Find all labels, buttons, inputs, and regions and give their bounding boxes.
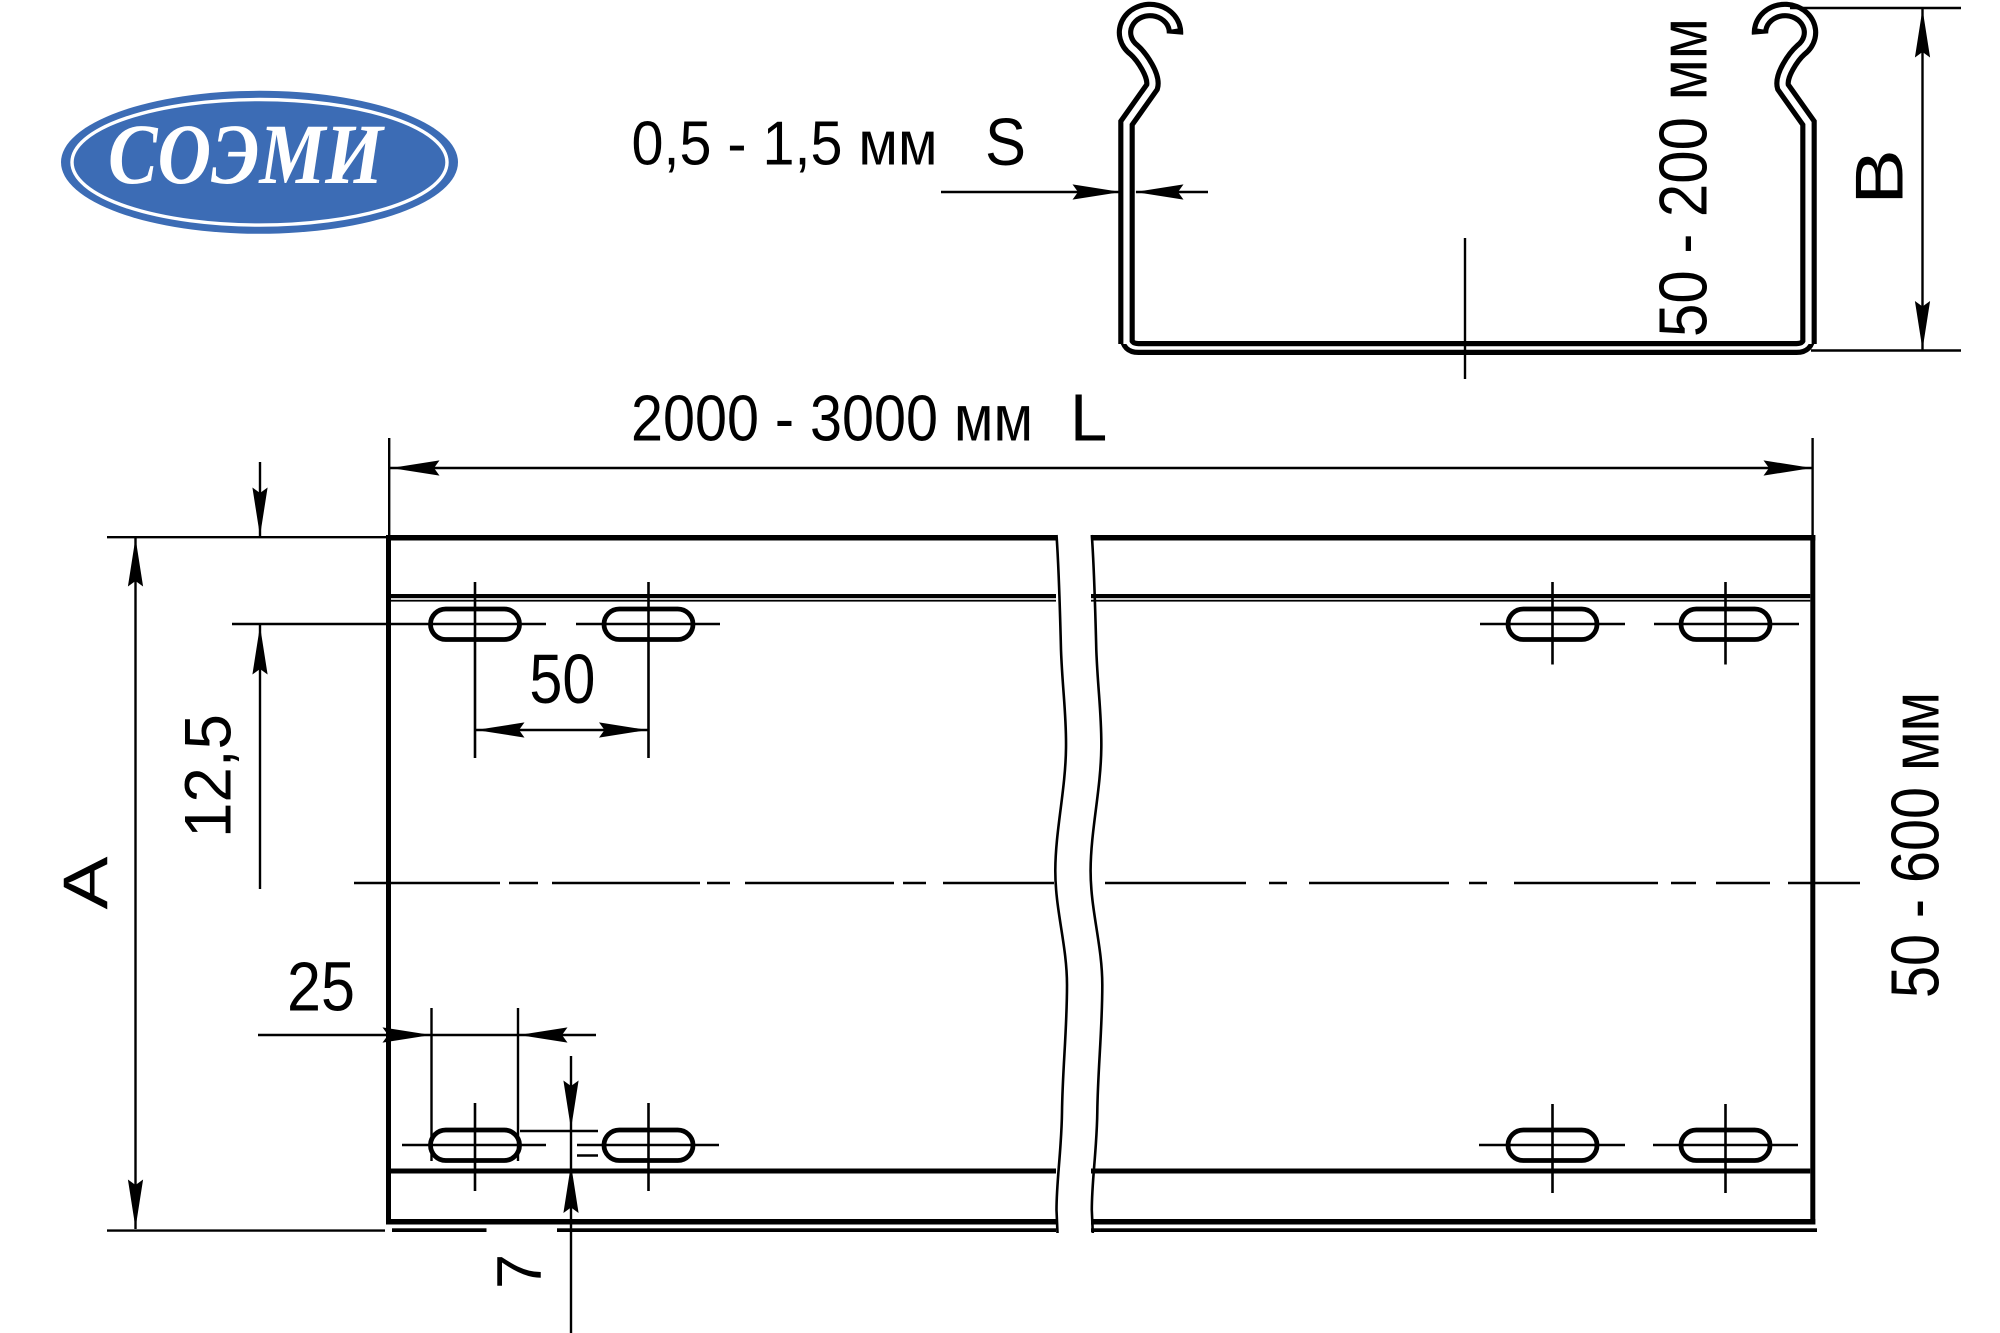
svg-text:S: S <box>985 105 1026 180</box>
svg-text:B: B <box>1842 149 1918 205</box>
svg-text:L: L <box>1070 381 1107 456</box>
svg-text:СОЭМИ: СОЭМИ <box>108 106 386 202</box>
svg-text:A: A <box>51 857 121 910</box>
svg-text:7: 7 <box>485 1254 555 1289</box>
svg-text:50: 50 <box>529 640 595 718</box>
svg-text:2000 - 3000 мм: 2000 - 3000 мм <box>631 382 1033 455</box>
svg-text:50 - 600 мм: 50 - 600 мм <box>1878 692 1954 998</box>
svg-text:50 - 200 мм: 50 - 200 мм <box>1646 18 1722 337</box>
svg-text:25: 25 <box>287 948 355 1026</box>
svg-text:0,5 - 1,5 мм: 0,5 - 1,5 мм <box>632 110 938 179</box>
svg-text:12,5: 12,5 <box>171 714 245 838</box>
